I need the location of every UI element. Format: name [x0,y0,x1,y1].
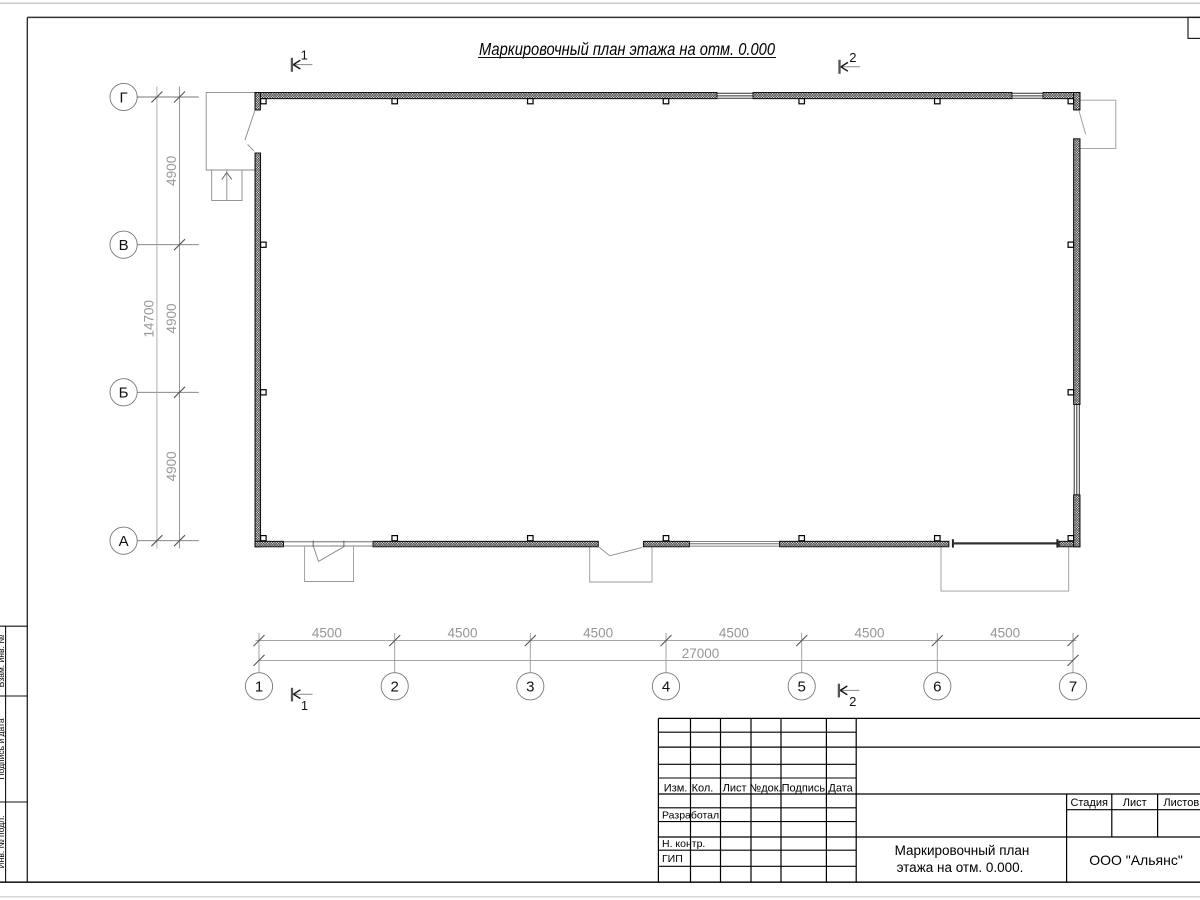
svg-text:№док.: №док. [749,782,781,794]
svg-text:4: 4 [662,679,670,696]
svg-text:В: В [119,237,129,254]
svg-text:5: 5 [798,679,806,696]
svg-text:4900: 4900 [164,451,179,481]
svg-text:Г: Г [120,89,128,106]
svg-text:4500: 4500 [312,626,342,641]
svg-text:4500: 4500 [990,626,1020,641]
svg-text:Лист: Лист [723,782,747,794]
svg-text:2: 2 [849,50,856,65]
svg-text:ГИП: ГИП [662,853,683,865]
svg-text:Н. контр.: Н. контр. [662,838,705,850]
svg-text:4500: 4500 [447,626,477,641]
svg-text:Подпись: Подпись [782,782,826,794]
svg-text:Стадия: Стадия [1070,797,1108,809]
svg-text:А: А [119,533,129,550]
svg-text:27000: 27000 [682,646,720,661]
svg-text:4500: 4500 [583,626,613,641]
svg-text:Маркировочный план: Маркировочный план [895,843,1030,858]
svg-text:1: 1 [301,48,308,63]
svg-text:Подпись и дата: Подпись и дата [0,718,6,779]
svg-text:4900: 4900 [164,156,179,186]
svg-text:ООО "Альянс": ООО "Альянс" [1089,852,1183,868]
svg-text:Разработал: Разработал [662,809,719,821]
svg-text:4900: 4900 [164,303,179,333]
svg-text:3: 3 [526,679,534,696]
svg-text:Инв. № подл.: Инв. № подл. [0,816,6,869]
svg-text:7: 7 [1069,679,1077,696]
svg-text:Изм.: Изм. [664,782,688,794]
svg-text:Лист: Лист [1123,797,1147,809]
svg-text:Кол.: Кол. [692,782,714,794]
svg-text:4500: 4500 [854,626,884,641]
svg-text:6: 6 [933,679,941,696]
svg-text:4500: 4500 [719,626,749,641]
svg-text:Маркировочный план этажа на от: Маркировочный план этажа на отм. 0.000 [479,39,775,59]
svg-text:Б: Б [119,385,129,402]
svg-text:этажа на отм. 0.000.: этажа на отм. 0.000. [897,860,1024,875]
svg-text:1: 1 [301,698,308,713]
svg-text:Взам. инв. №: Взам. инв. № [0,635,6,688]
svg-text:2: 2 [391,679,399,696]
svg-text:2: 2 [849,694,856,709]
svg-text:14700: 14700 [142,300,157,338]
svg-text:Дата: Дата [828,782,853,794]
svg-text:Листов: Листов [1163,797,1199,809]
svg-text:1: 1 [255,679,263,696]
